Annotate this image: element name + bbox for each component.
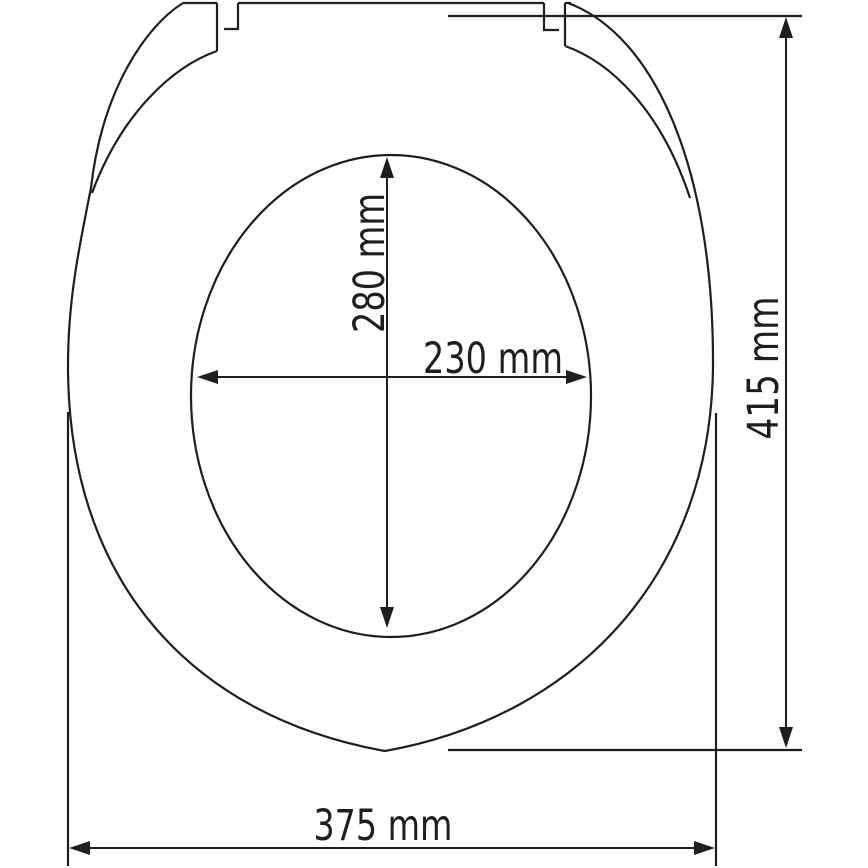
left-hinge-tab (224, 3, 238, 29)
arrow-left-icon (197, 370, 218, 384)
arrow-down-icon (380, 607, 394, 628)
arrow-up-icon (380, 157, 394, 178)
arrow-right-icon (694, 841, 715, 855)
outer-width-label: 375 mm (314, 801, 453, 851)
left-shoulder-edge (92, 51, 217, 193)
arrow-up-icon (779, 17, 793, 38)
dimension-inner-height: 280 mm (345, 157, 395, 628)
inner-width-label: 230 mm (423, 334, 563, 384)
diagram-canvas: 280 mm 230 mm 415 mm 375 mm (0, 0, 868, 868)
right-shoulder-edge (565, 46, 690, 198)
outer-height-label: 415 mm (739, 297, 789, 440)
seat-dimension-diagram: 280 mm 230 mm 415 mm 375 mm (0, 0, 868, 868)
arrow-right-icon (566, 370, 587, 384)
arrow-down-icon (779, 727, 793, 748)
dimension-inner-width: 230 mm (197, 334, 587, 384)
arrow-left-icon (69, 841, 90, 855)
inner-height-label: 280 mm (345, 193, 395, 333)
